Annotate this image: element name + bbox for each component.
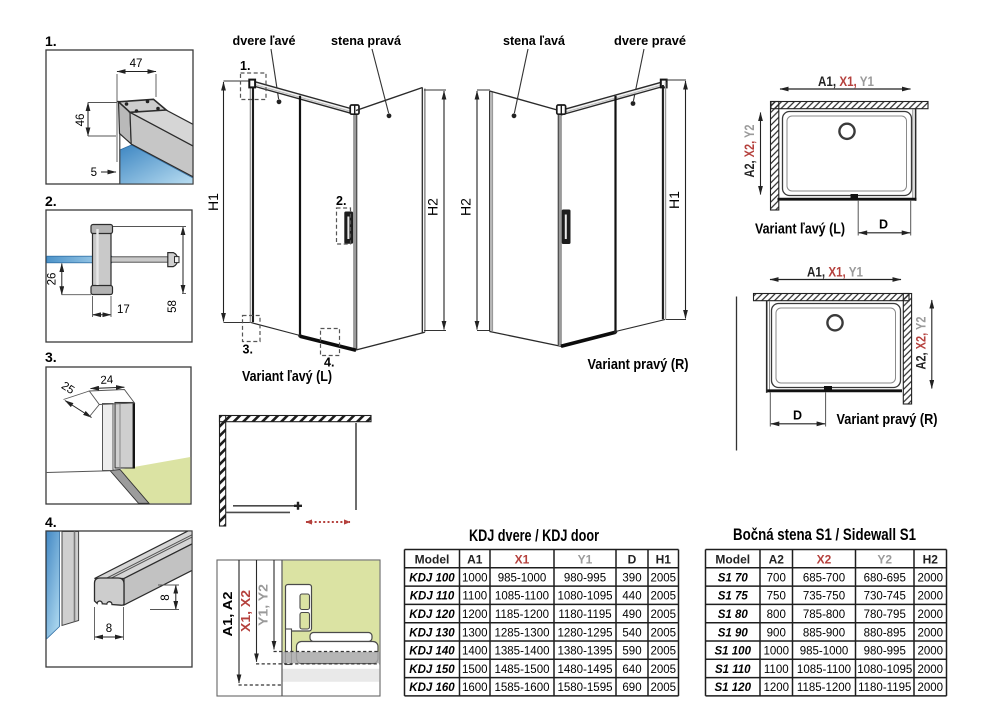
- svg-text:H1: H1: [205, 193, 221, 211]
- svg-text:1500: 1500: [462, 664, 488, 676]
- svg-text:A2, X2, Y2: A2, X2, Y2: [913, 317, 928, 370]
- svg-text:1185-1200: 1185-1200: [495, 609, 549, 621]
- svg-text:1100: 1100: [764, 664, 789, 676]
- svg-text:540: 540: [622, 627, 641, 639]
- svg-text:D: D: [628, 552, 637, 566]
- svg-text:2.: 2.: [45, 193, 57, 209]
- svg-text:780-795: 780-795: [864, 609, 906, 621]
- svg-text:1285-1300: 1285-1300: [495, 627, 550, 639]
- svg-text:900: 900: [767, 627, 786, 639]
- svg-text:1085-1100: 1085-1100: [797, 664, 851, 676]
- svg-text:S1 75: S1 75: [718, 591, 749, 603]
- svg-text:2005: 2005: [650, 682, 676, 694]
- svg-text:1580-1595: 1580-1595: [558, 682, 613, 694]
- svg-text:1000: 1000: [462, 572, 488, 584]
- svg-text:750: 750: [767, 591, 786, 603]
- svg-text:Variant pravý (R): Variant pravý (R): [837, 412, 938, 428]
- svg-text:1485-1500: 1485-1500: [495, 664, 550, 676]
- svg-text:2000: 2000: [917, 682, 943, 694]
- svg-text:2005: 2005: [650, 664, 676, 676]
- svg-text:1400: 1400: [462, 646, 488, 658]
- svg-text:5: 5: [91, 167, 97, 179]
- svg-text:390: 390: [622, 572, 641, 584]
- svg-text:Y1: Y1: [578, 552, 593, 566]
- svg-text:Variant ľavý (L): Variant ľavý (L): [242, 369, 332, 385]
- svg-text:885-900: 885-900: [803, 627, 845, 639]
- svg-text:24: 24: [100, 374, 114, 387]
- svg-text:S1 70: S1 70: [718, 572, 749, 584]
- svg-text:S1 100: S1 100: [715, 646, 752, 658]
- svg-text:1100: 1100: [462, 591, 487, 603]
- svg-text:Y1, Y2: Y1, Y2: [257, 584, 271, 626]
- svg-text:stena pravá: stena pravá: [331, 33, 402, 48]
- svg-text:stena ľavá: stena ľavá: [503, 33, 566, 48]
- svg-text:980-995: 980-995: [564, 572, 606, 584]
- svg-text:2000: 2000: [917, 609, 943, 621]
- svg-text:Bočná stena S1 / Sidewall S1: Bočná stena S1 / Sidewall S1: [733, 526, 916, 544]
- svg-text:S1 80: S1 80: [718, 609, 749, 621]
- svg-text:S1 120: S1 120: [715, 682, 752, 694]
- svg-text:X2: X2: [817, 552, 832, 566]
- svg-text:1180-1195: 1180-1195: [858, 682, 911, 694]
- svg-text:1280-1295: 1280-1295: [558, 627, 613, 639]
- svg-text:1300: 1300: [462, 627, 488, 639]
- svg-text:KDJ 150: KDJ 150: [409, 664, 455, 676]
- svg-text:dvere pravé: dvere pravé: [614, 33, 686, 48]
- svg-text:KDJ 140: KDJ 140: [409, 646, 455, 658]
- svg-text:A2: A2: [769, 552, 785, 566]
- svg-text:4.: 4.: [324, 356, 334, 370]
- svg-text:D: D: [793, 409, 802, 423]
- svg-text:2005: 2005: [650, 609, 676, 621]
- svg-text:2000: 2000: [917, 572, 943, 584]
- svg-text:880-895: 880-895: [864, 627, 906, 639]
- svg-text:58: 58: [167, 300, 179, 313]
- svg-text:1585-1600: 1585-1600: [495, 682, 550, 694]
- svg-text:690: 690: [622, 682, 641, 694]
- svg-text:S1 90: S1 90: [718, 627, 749, 639]
- svg-text:47: 47: [130, 58, 143, 70]
- svg-text:S1 110: S1 110: [715, 664, 751, 676]
- svg-text:1180-1195: 1180-1195: [558, 609, 611, 621]
- svg-text:1080-1095: 1080-1095: [857, 664, 912, 676]
- svg-text:Model: Model: [715, 552, 750, 566]
- svg-text:KDJ 120: KDJ 120: [409, 609, 455, 621]
- svg-text:1600: 1600: [462, 682, 488, 694]
- svg-text:8: 8: [106, 623, 112, 635]
- svg-text:680-695: 680-695: [864, 572, 906, 584]
- svg-text:8: 8: [160, 594, 172, 600]
- svg-text:1080-1095: 1080-1095: [558, 591, 613, 603]
- svg-text:2000: 2000: [917, 627, 943, 639]
- svg-text:1385-1400: 1385-1400: [495, 646, 550, 658]
- svg-text:46: 46: [75, 114, 87, 127]
- svg-text:985-1000: 985-1000: [498, 572, 547, 584]
- svg-text:3.: 3.: [243, 343, 253, 357]
- svg-text:980-995: 980-995: [864, 646, 906, 658]
- svg-text:Model: Model: [415, 552, 450, 566]
- svg-text:1000: 1000: [763, 646, 789, 658]
- svg-text:640: 640: [622, 664, 641, 676]
- svg-text:985-1000: 985-1000: [800, 646, 849, 658]
- svg-text:A1: A1: [467, 552, 483, 566]
- svg-text:785-800: 785-800: [803, 609, 845, 621]
- svg-text:730-745: 730-745: [864, 591, 906, 603]
- svg-text:KDJ dvere / KDJ door: KDJ dvere / KDJ door: [469, 527, 599, 545]
- svg-text:A2, X2, Y2: A2, X2, Y2: [742, 125, 757, 178]
- svg-text:KDJ 100: KDJ 100: [409, 572, 455, 584]
- svg-text:1185-1200: 1185-1200: [797, 682, 851, 694]
- svg-text:800: 800: [767, 609, 786, 621]
- svg-text:X1: X1: [515, 552, 530, 566]
- svg-text:Variant ľavý (L): Variant ľavý (L): [755, 222, 845, 238]
- svg-text:X1, X2: X1, X2: [239, 590, 253, 632]
- svg-text:H2: H2: [923, 552, 939, 566]
- svg-text:4.: 4.: [45, 514, 57, 530]
- svg-text:1200: 1200: [763, 682, 789, 694]
- svg-text:685-700: 685-700: [803, 572, 845, 584]
- svg-text:735-750: 735-750: [803, 591, 845, 603]
- svg-text:A1, X1, Y1: A1, X1, Y1: [807, 265, 863, 280]
- svg-text:KDJ 160: KDJ 160: [409, 682, 455, 694]
- svg-text:H2: H2: [425, 198, 441, 216]
- svg-text:17: 17: [117, 304, 130, 316]
- svg-text:2000: 2000: [917, 591, 943, 603]
- svg-text:H2: H2: [458, 198, 474, 216]
- svg-text:Y2: Y2: [877, 552, 892, 566]
- svg-text:H1: H1: [656, 552, 672, 566]
- svg-text:A1, X1, Y1: A1, X1, Y1: [818, 74, 874, 89]
- svg-text:2000: 2000: [917, 664, 943, 676]
- svg-text:A1, A2: A1, A2: [221, 591, 235, 636]
- svg-text:3.: 3.: [45, 349, 57, 365]
- svg-text:1200: 1200: [462, 609, 488, 621]
- svg-text:2000: 2000: [917, 646, 943, 658]
- svg-text:H1: H1: [666, 191, 682, 209]
- svg-text:KDJ 110: KDJ 110: [410, 591, 455, 603]
- svg-text:440: 440: [622, 591, 641, 603]
- svg-text:700: 700: [767, 572, 786, 584]
- svg-text:1380-1395: 1380-1395: [558, 646, 613, 658]
- svg-text:1085-1100: 1085-1100: [495, 591, 549, 603]
- svg-text:2005: 2005: [650, 591, 676, 603]
- svg-text:2005: 2005: [650, 646, 676, 658]
- svg-text:dvere ľavé: dvere ľavé: [233, 33, 296, 48]
- svg-text:1.: 1.: [45, 33, 57, 49]
- svg-text:D: D: [879, 218, 888, 232]
- svg-text:KDJ 130: KDJ 130: [409, 627, 455, 639]
- svg-text:1.: 1.: [240, 59, 250, 73]
- svg-text:590: 590: [622, 646, 641, 658]
- svg-text:2005: 2005: [650, 627, 676, 639]
- svg-text:2.: 2.: [336, 194, 346, 208]
- svg-text:490: 490: [622, 609, 641, 621]
- svg-text:Variant pravý (R): Variant pravý (R): [588, 357, 689, 373]
- svg-text:26: 26: [47, 273, 59, 286]
- svg-text:1480-1495: 1480-1495: [558, 664, 613, 676]
- svg-text:2005: 2005: [650, 572, 676, 584]
